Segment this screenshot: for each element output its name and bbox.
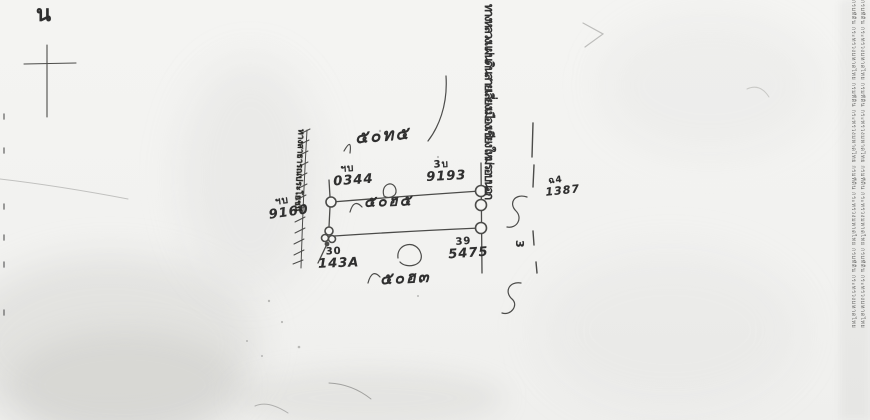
survey-linework xyxy=(0,0,870,420)
parcel-name-middle: ๕๐ฮ๕ xyxy=(364,193,414,210)
marker-label-left: ฯบ 9160 xyxy=(267,193,310,222)
scanned-survey-sheet: น ๕๐ท๕ ๕๐ฮ๕ ๕๐ฮ๓ ฯบ 0344 3บ 9193 39 5475… xyxy=(0,0,870,420)
north-cross xyxy=(24,45,76,117)
corner-number: 143A xyxy=(318,256,360,271)
faint-scan-marks xyxy=(0,23,769,413)
road-name-vertical: ทางหลวงแผ่นดินสายเลี่ยงเมืองเชียงใหม่รอบ… xyxy=(483,4,495,418)
corner-label-top-left: ฯบ 0344 xyxy=(332,163,374,189)
road-side-digit: 3 xyxy=(514,240,525,248)
edge-microtext-column-b: กรมที่ดิน กระทรวงมหาดไทย กรมที่ดิน กระทร… xyxy=(858,0,866,420)
north-letter: น xyxy=(36,4,51,26)
corner-number: 0344 xyxy=(333,173,374,189)
parcel-name-bottom: ๕๐ฮ๓ xyxy=(380,269,431,288)
corner-label-bottom-left: 30 143A xyxy=(318,246,360,271)
corner-label-top-right: 3บ 9193 xyxy=(425,159,466,185)
road-dashed-edge xyxy=(532,123,537,273)
edge-microtext-column-a: กรมที่ดิน กระทรวงมหาดไทย กรมที่ดิน กระทร… xyxy=(849,0,857,420)
corner-number: 9193 xyxy=(426,169,467,184)
road-side-mark: ฉ4 1387 xyxy=(544,174,581,198)
